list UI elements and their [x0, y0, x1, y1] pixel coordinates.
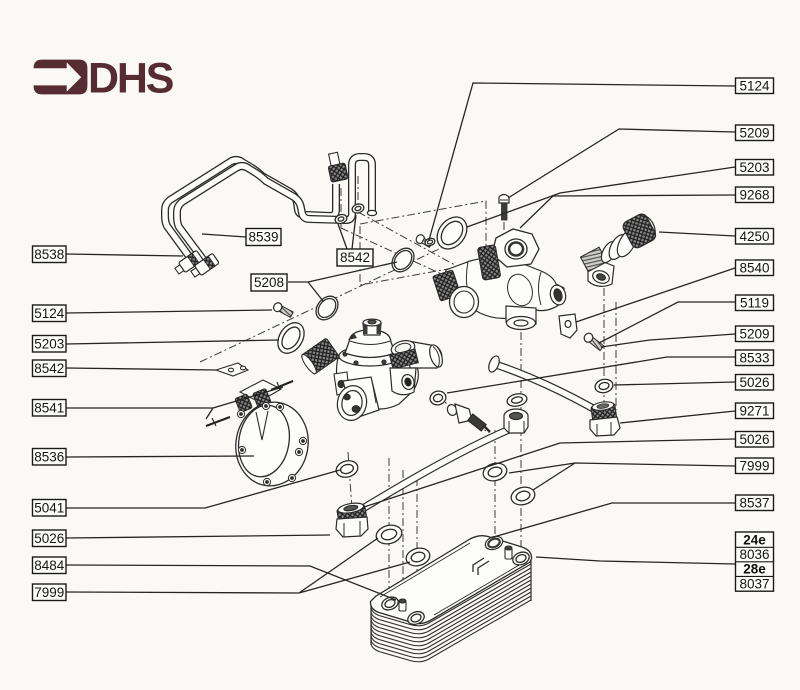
svg-text:5124: 5124	[739, 79, 770, 94]
svg-text:4250: 4250	[739, 229, 769, 244]
svg-text:5209: 5209	[739, 126, 769, 141]
svg-text:5026: 5026	[739, 375, 769, 390]
svg-text:5124: 5124	[34, 306, 65, 321]
svg-text:28e: 28e	[743, 562, 766, 577]
svg-text:7999: 7999	[34, 585, 64, 600]
svg-text:8542: 8542	[34, 361, 64, 376]
svg-text:9271: 9271	[739, 404, 769, 419]
svg-text:5209: 5209	[739, 327, 769, 342]
svg-text:7999: 7999	[739, 459, 769, 474]
svg-text:8536: 8536	[34, 450, 64, 465]
svg-text:8036: 8036	[739, 547, 769, 562]
svg-text:5203: 5203	[739, 160, 769, 175]
svg-text:8542: 8542	[340, 250, 370, 265]
svg-text:8537: 8537	[739, 496, 769, 511]
svg-text:24e: 24e	[743, 533, 766, 548]
svg-text:8540: 8540	[739, 261, 769, 276]
svg-text:5119: 5119	[740, 296, 769, 311]
svg-text:8539: 8539	[248, 230, 278, 245]
svg-text:5026: 5026	[739, 432, 769, 447]
svg-text:8484: 8484	[34, 558, 65, 573]
svg-text:5026: 5026	[34, 531, 64, 546]
svg-text:5208: 5208	[254, 275, 284, 290]
svg-text:9268: 9268	[739, 188, 769, 203]
svg-text:8533: 8533	[739, 351, 769, 366]
svg-text:DHS: DHS	[88, 55, 173, 103]
svg-text:5203: 5203	[34, 337, 64, 352]
svg-text:8541: 8541	[34, 401, 64, 416]
svg-text:5041: 5041	[34, 501, 64, 516]
svg-text:8037: 8037	[739, 576, 769, 591]
svg-text:8538: 8538	[34, 247, 64, 262]
